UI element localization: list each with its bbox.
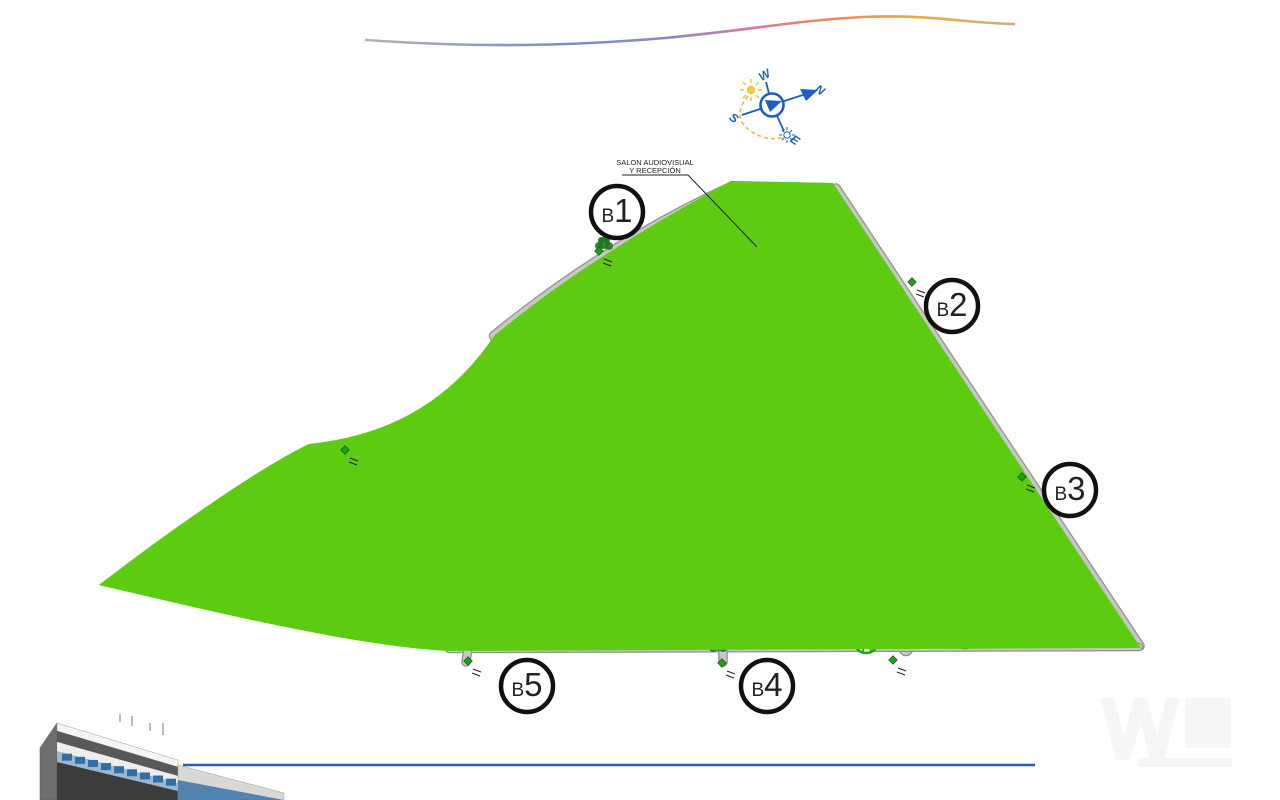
compass-label-n: N (812, 82, 827, 99)
annotation-line2: Y RECEPCIÓN (629, 166, 681, 175)
window (75, 757, 85, 764)
gate-hatch (897, 668, 906, 675)
gate-marker-icon (908, 278, 916, 286)
gate-marker-icon (889, 656, 897, 664)
top-decorative-line (366, 16, 1014, 45)
master-plan-svg: N W S E PETANCA (0, 0, 1280, 800)
building-render (40, 714, 284, 800)
site-boundary (99, 181, 1141, 651)
gate-hatch (472, 669, 481, 676)
window (140, 772, 150, 779)
window (101, 763, 111, 770)
window (88, 760, 98, 767)
window (114, 766, 124, 773)
circle (598, 237, 604, 243)
window (153, 776, 163, 783)
sun-icon (740, 79, 762, 101)
compass-label-s: S (727, 110, 742, 126)
compass-label-w: W (756, 65, 774, 84)
compass-rose: N W S E (727, 65, 828, 148)
window (166, 779, 176, 786)
circle (605, 242, 613, 250)
window (62, 754, 72, 761)
site-plan-page: N W S E PETANCA (0, 0, 1280, 800)
gate-hatch (916, 290, 925, 297)
watermark (1100, 698, 1232, 767)
gate-hatch (726, 671, 735, 678)
window (127, 769, 137, 776)
